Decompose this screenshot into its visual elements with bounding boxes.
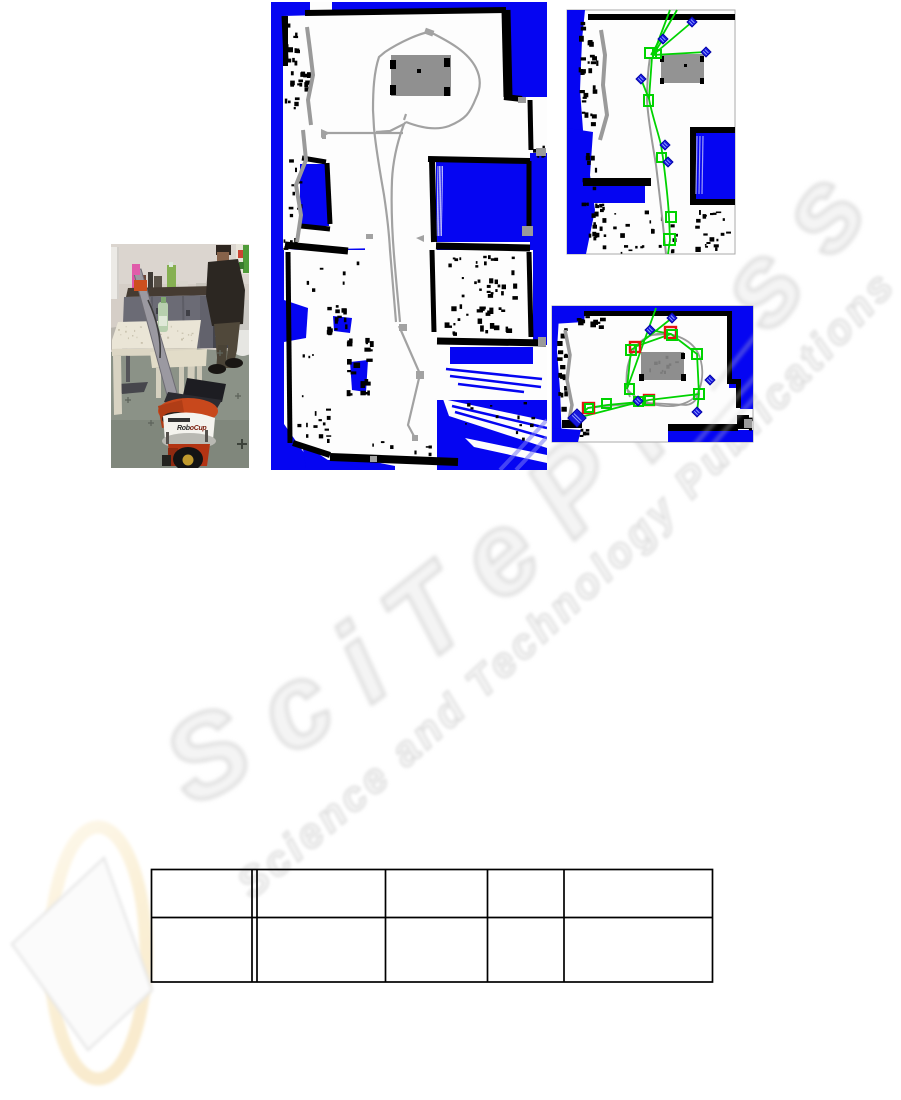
svg-text:RoboCup: RoboCup bbox=[177, 425, 207, 432]
